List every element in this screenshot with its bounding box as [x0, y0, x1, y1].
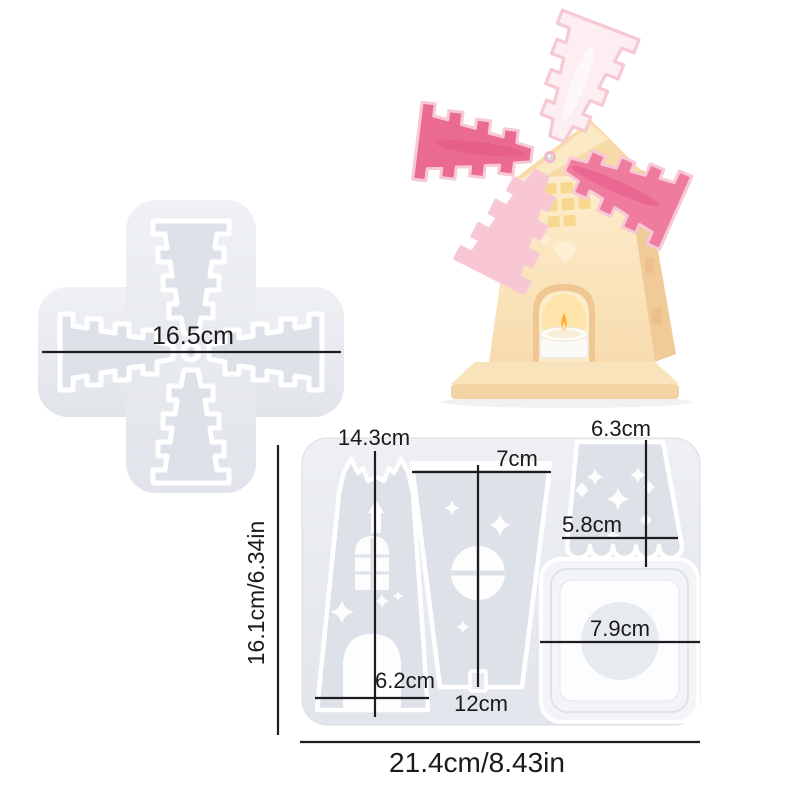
- dim-label-tower-width: 6.2cm: [375, 668, 435, 693]
- dim-label-overall-height: 16.1cm/6.34in: [243, 521, 269, 665]
- dim-label-base-width: 7.9cm: [590, 616, 650, 641]
- cavity-roof: [567, 442, 682, 558]
- dim-label-roof-width: 5.8cm: [562, 512, 622, 537]
- panel-mold-photo: 14.3cm 6.2cm 7cm 12cm 6.3cm 5.8cm 7.9cm …: [255, 415, 775, 800]
- windmill-base: [451, 362, 679, 399]
- tealight-candle: [540, 294, 588, 358]
- dim-label-roof-height: 6.3cm: [591, 416, 651, 441]
- rotor-hub: [544, 151, 556, 163]
- dim-label-tower-height: 14.3cm: [338, 425, 410, 450]
- dim-label-wall-height: 12cm: [454, 691, 508, 716]
- dim-label-blade-width: 16.5cm: [152, 322, 234, 350]
- dim-label-overall-width: 21.4cm/8.43in: [389, 747, 565, 778]
- product-image: 16.5cm: [0, 0, 800, 800]
- dim-label-wall-width: 7cm: [496, 446, 538, 471]
- finished-windmill-photo: [395, 10, 795, 410]
